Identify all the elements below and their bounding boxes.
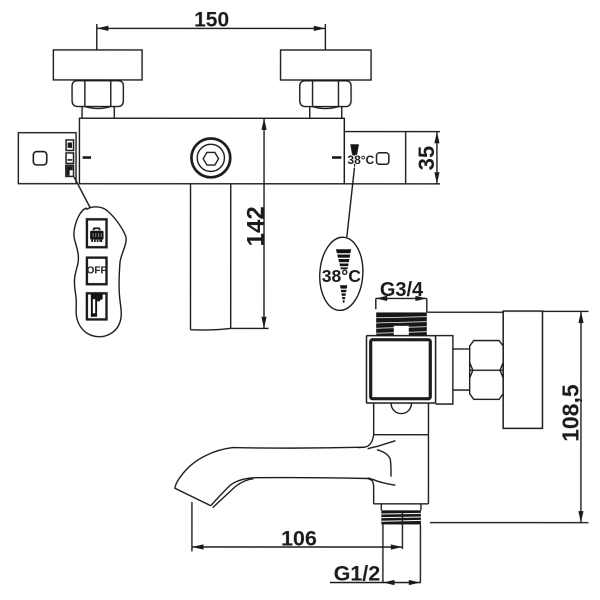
svg-text:108,5: 108,5: [557, 384, 583, 442]
svg-text:142: 142: [242, 206, 269, 246]
svg-text:38°C: 38°C: [322, 266, 361, 286]
svg-text:150: 150: [194, 8, 229, 31]
svg-text:G1/2: G1/2: [334, 561, 381, 585]
svg-text:38°C: 38°C: [347, 153, 374, 167]
svg-text:G3/4: G3/4: [380, 279, 424, 301]
svg-text:106: 106: [281, 526, 317, 550]
svg-text:35: 35: [414, 146, 439, 170]
svg-text:OFF: OFF: [87, 266, 107, 277]
